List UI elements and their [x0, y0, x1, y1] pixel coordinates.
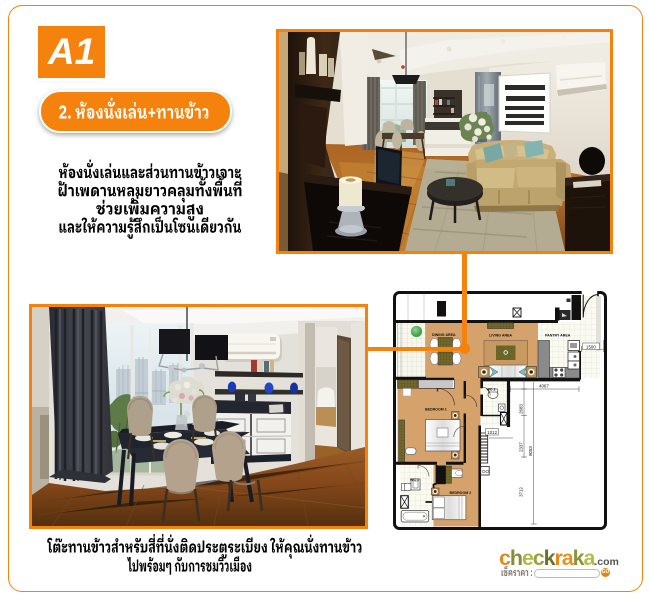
svg-text:2337: 2337 [519, 442, 524, 452]
svg-text:1500: 1500 [586, 344, 596, 349]
svg-text:DINING AREA: DINING AREA [432, 333, 456, 337]
svg-text:WC 2: WC 2 [487, 388, 496, 392]
svg-text:4067: 4067 [539, 384, 549, 389]
svg-text:PANTRY AREA: PANTRY AREA [545, 334, 571, 338]
svg-text:LIVING AREA: LIVING AREA [489, 334, 512, 338]
svg-text:2683: 2683 [519, 404, 524, 414]
svg-text:1012: 1012 [487, 430, 497, 435]
svg-text:BEDROOM 1: BEDROOM 1 [425, 408, 447, 412]
svg-text:3712: 3712 [519, 487, 524, 497]
svg-text:OO: OO [482, 469, 490, 474]
svg-text:BEDROOM 2: BEDROOM 2 [450, 491, 472, 495]
svg-text:8053: 8053 [528, 446, 533, 456]
svg-text:WC 1: WC 1 [410, 478, 419, 482]
